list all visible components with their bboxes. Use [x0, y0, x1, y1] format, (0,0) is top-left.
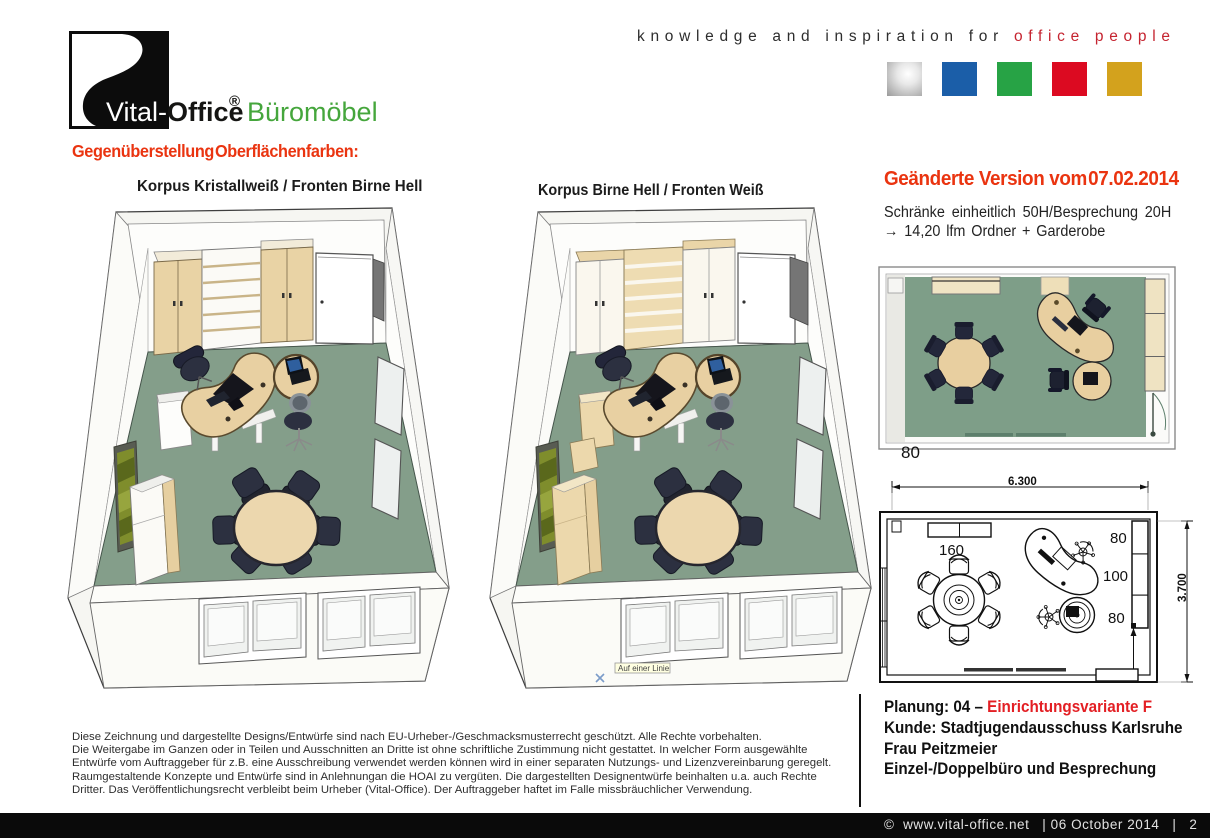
svg-text:3.700: 3.700 — [1177, 573, 1189, 602]
svg-text:®: ® — [229, 93, 240, 110]
svg-text:Auf einer Linie: Auf einer Linie — [618, 664, 670, 673]
svg-text:100: 100 — [1103, 568, 1128, 585]
svg-text:80: 80 — [1110, 530, 1127, 547]
svg-text:Vital-: Vital- — [106, 97, 167, 127]
svg-text:160: 160 — [939, 542, 964, 559]
svg-text:Büromöbel: Büromöbel — [247, 97, 378, 127]
svg-text:80: 80 — [1108, 610, 1125, 627]
svg-text:6.300: 6.300 — [1008, 476, 1037, 488]
